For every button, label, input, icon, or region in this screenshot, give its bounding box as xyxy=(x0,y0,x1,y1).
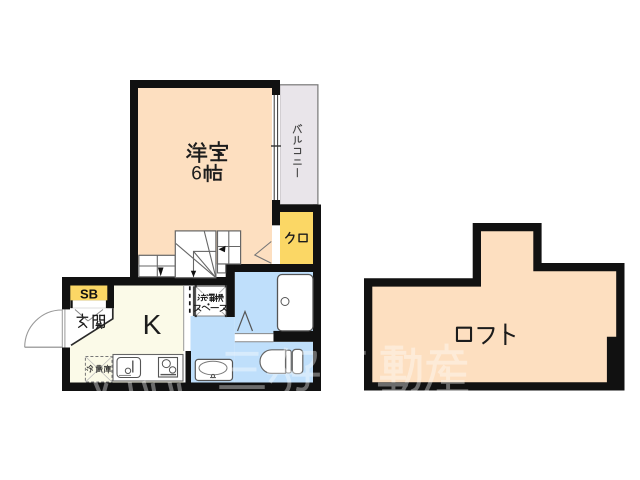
svg-text:K: K xyxy=(143,309,162,340)
svg-text:SB: SB xyxy=(80,287,98,302)
svg-text:6: 6 xyxy=(191,164,202,185)
